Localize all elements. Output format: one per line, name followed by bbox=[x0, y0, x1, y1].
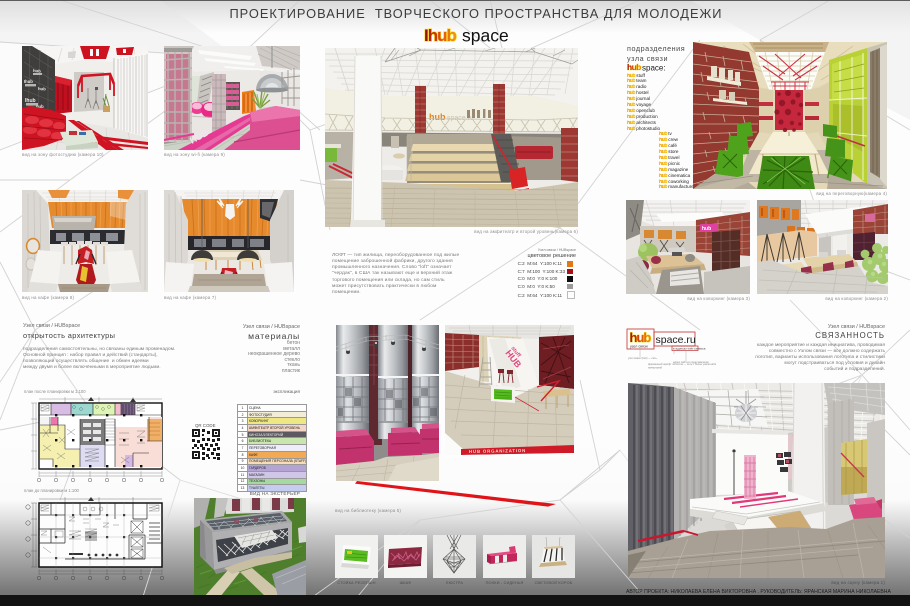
svg-text:Ihub: Ihub bbox=[424, 26, 456, 45]
svg-text:hub: hub bbox=[702, 226, 711, 232]
svg-text:HUB ORGANIZATION: HUB ORGANIZATION bbox=[469, 448, 526, 454]
svg-text:space: space bbox=[462, 26, 509, 46]
svg-text:hub: hub bbox=[33, 68, 41, 74]
svg-text:space:: space: bbox=[642, 63, 666, 72]
svg-text:Ihub: Ihub bbox=[24, 79, 33, 84]
svg-text:hub: hub bbox=[627, 62, 641, 72]
svg-text:hub: hub bbox=[38, 86, 46, 91]
